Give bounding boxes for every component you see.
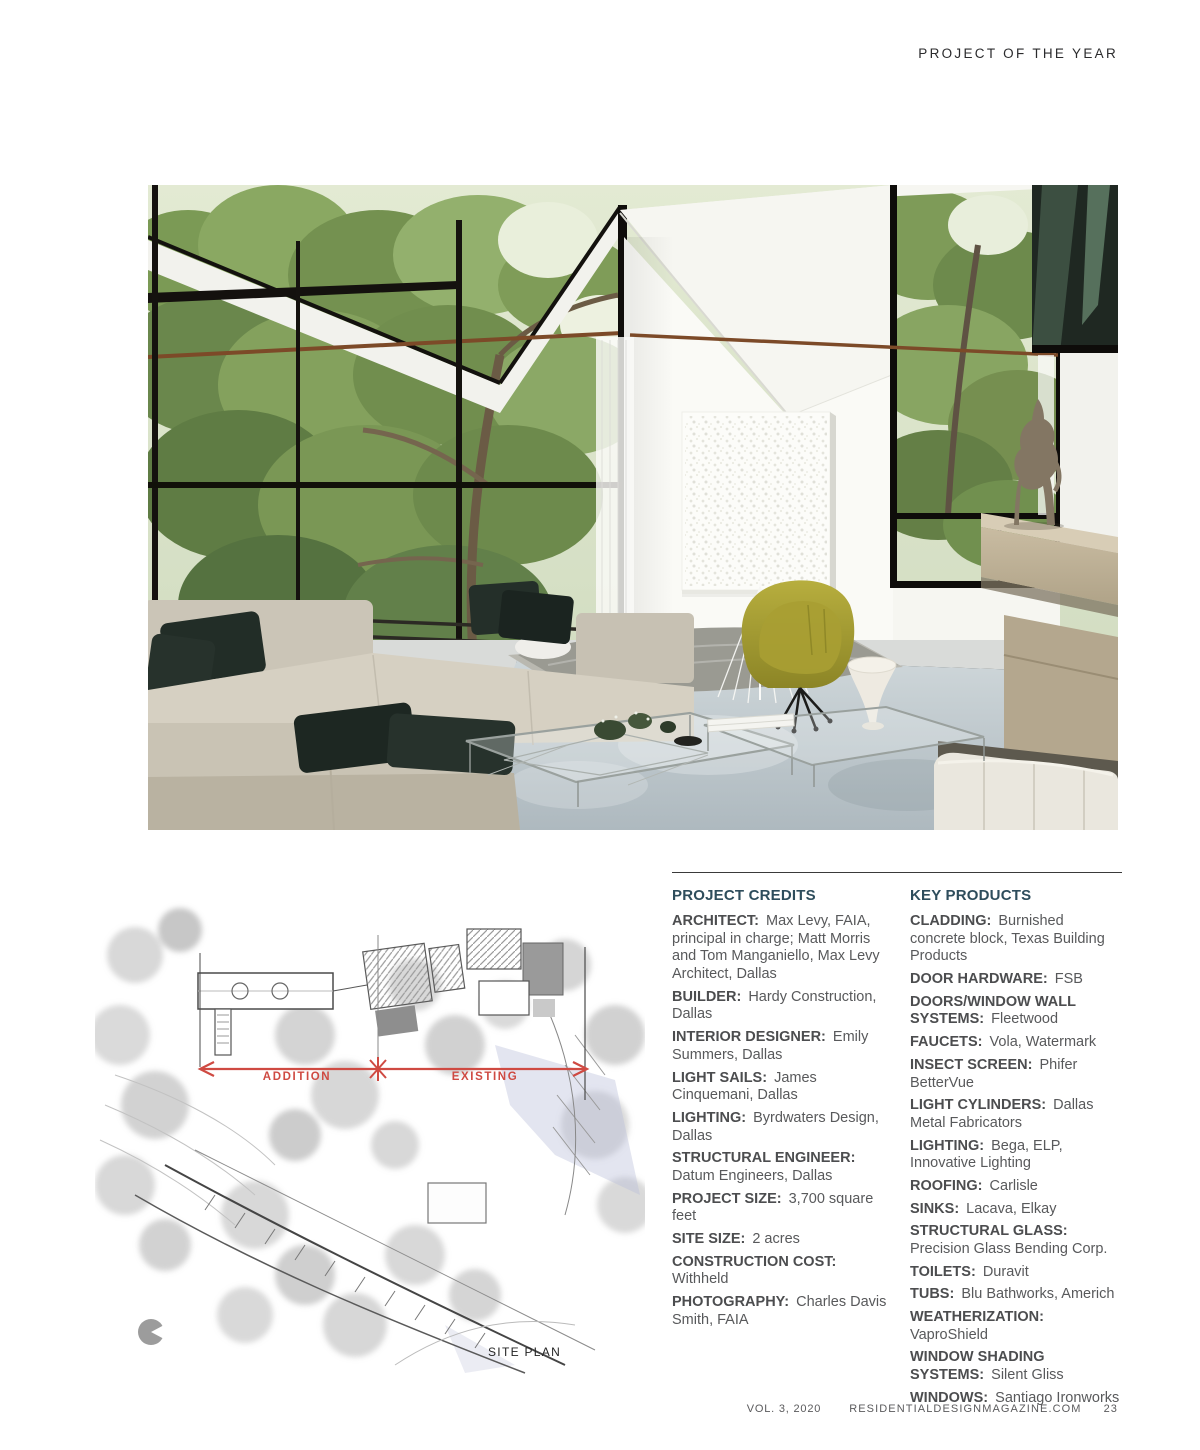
product-entry: LIGHT CYLINDERS: Dallas Metal Fabricator… [910,1097,1122,1132]
product-value: Silent Gliss [991,1367,1064,1383]
product-value: VaproShield [910,1327,988,1343]
north-arrow-icon [138,1319,169,1345]
key-products-title: KEY PRODUCTS [910,887,1122,904]
credit-label: BUILDER: [672,989,745,1005]
credit-label: INTERIOR DESIGNER: [672,1029,830,1045]
credit-value: Withheld [672,1271,728,1287]
credit-entry: LIGHT SAILS: James Cinquemani, Dallas [672,1070,897,1105]
product-label: ROOFING: [910,1178,987,1194]
site-plan-drawing [95,895,645,1375]
product-entry: DOOR HARDWARE: FSB [910,971,1122,989]
product-entry: DOORS/WINDOW WALL SYSTEMS: Fleetwood [910,994,1122,1029]
credit-value: Datum Engineers, Dallas [672,1168,832,1184]
product-value: Fleetwood [991,1011,1058,1027]
product-label: STRUCTURAL GLASS: [910,1223,1068,1239]
product-label: FAUCETS: [910,1034,987,1050]
credit-label: LIGHT SAILS: [672,1070,771,1086]
credit-value: 2 acres [752,1231,800,1247]
product-entry: TOILETS: Duravit [910,1264,1122,1282]
product-entry: LIGHTING: Bega, ELP, Innovative Lighting [910,1138,1122,1173]
credit-entry: STRUCTURAL ENGINEER: Datum Engineers, Da… [672,1150,897,1185]
product-label: TOILETS: [910,1264,980,1280]
key-products-column: KEY PRODUCTS CLADDING: Burnished concret… [910,887,1122,1413]
credit-label: STRUCTURAL ENGINEER: [672,1150,855,1166]
section-rule [672,872,1122,873]
credit-entry: ARCHITECT: Max Levy, FAIA, principal in … [672,913,897,984]
project-credits-column: PROJECT CREDITS ARCHITECT: Max Levy, FAI… [672,887,897,1413]
credit-label: PHOTOGRAPHY: [672,1294,793,1310]
site-plan: ADDITION EXISTING SITE PLAN [95,895,645,1375]
key-products-list: CLADDING: Burnished concrete block, Texa… [910,913,1122,1408]
product-value: Carlisle [990,1178,1038,1194]
product-label: SINKS: [910,1201,963,1217]
product-entry: CLADDING: Burnished concrete block, Texa… [910,913,1122,966]
product-entry: SINKS: Lacava, Elkay [910,1201,1122,1219]
product-label: WEATHERIZATION: [910,1309,1044,1325]
site-plan-caption: SITE PLAN [488,1345,561,1359]
product-entry: STRUCTURAL GLASS: Precision Glass Bendin… [910,1223,1122,1258]
product-entry: TUBS: Blu Bathworks, Americh [910,1286,1122,1304]
credit-label: PROJECT SIZE: [672,1191,786,1207]
product-entry: WINDOW SHADING SYSTEMS: Silent Gliss [910,1349,1122,1384]
magazine-page: PROJECT OF THE YEAR [0,0,1200,1450]
credits-section: PROJECT CREDITS ARCHITECT: Max Levy, FAI… [672,872,1122,1413]
credit-entry: CONSTRUCTION COST: Withheld [672,1254,897,1289]
hero-photo-illustration [148,185,1118,830]
product-entry: INSECT SCREEN: Phifer BetterVue [910,1057,1122,1092]
credit-label: CONSTRUCTION COST: [672,1254,836,1270]
credit-label: ARCHITECT: [672,913,763,929]
product-value: FSB [1055,971,1083,987]
credit-label: SITE SIZE: [672,1231,749,1247]
footer-volume: VOL. 3, 2020 [747,1403,821,1415]
wall-art [682,412,836,597]
credit-entry: BUILDER: Hardy Construction, Dallas [672,989,897,1024]
product-value: Vola, Watermark [990,1034,1097,1050]
credit-entry: PHOTOGRAPHY: Charles Davis Smith, FAIA [672,1294,897,1329]
product-value: Duravit [983,1264,1029,1280]
product-label: CLADDING: [910,913,995,929]
product-value: Lacava, Elkay [966,1201,1056,1217]
credit-label: LIGHTING: [672,1110,750,1126]
product-entry: FAUCETS: Vola, Watermark [910,1034,1122,1052]
page-header: PROJECT OF THE YEAR [918,46,1118,61]
project-credits-title: PROJECT CREDITS [672,887,897,904]
addition-label: ADDITION [263,1071,331,1083]
product-label: INSECT SCREEN: [910,1057,1037,1073]
existing-label: EXISTING [452,1071,518,1083]
product-label: DOOR HARDWARE: [910,971,1052,987]
credit-entry: SITE SIZE: 2 acres [672,1231,897,1249]
credit-entry: PROJECT SIZE: 3,700 square feet [672,1191,897,1226]
product-entry: ROOFING: Carlisle [910,1178,1122,1196]
product-value: Precision Glass Bending Corp. [910,1241,1107,1257]
hero-photo [148,185,1118,830]
footer-page-number: 23 [1104,1403,1118,1415]
credit-entry: LIGHTING: Byrdwaters Design, Dallas [672,1110,897,1145]
footer-website: RESIDENTIALDESIGNMAGAZINE.COM [849,1403,1081,1415]
product-label: TUBS: [910,1286,958,1302]
product-label: LIGHT CYLINDERS: [910,1097,1050,1113]
product-entry: WEATHERIZATION: VaproShield [910,1309,1122,1344]
product-value: Blu Bathworks, Americh [961,1286,1114,1302]
project-credits-list: ARCHITECT: Max Levy, FAIA, principal in … [672,913,897,1329]
product-label: LIGHTING: [910,1138,988,1154]
page-footer: VOL. 3, 2020RESIDENTIALDESIGNMAGAZINE.CO… [747,1403,1118,1415]
credit-entry: INTERIOR DESIGNER: Emily Summers, Dallas [672,1029,897,1064]
